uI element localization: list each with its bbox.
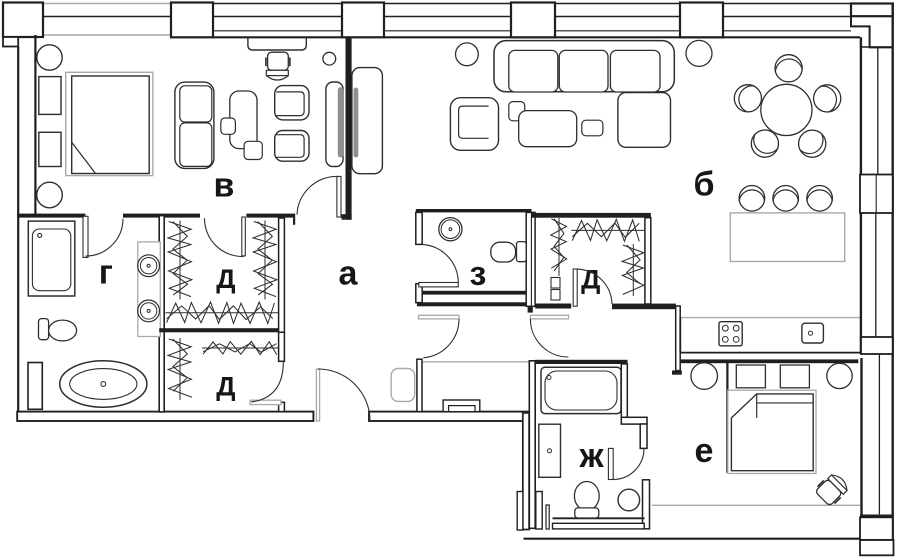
svg-text:ж: ж	[578, 437, 604, 475]
svg-text:г: г	[99, 254, 113, 292]
svg-text:а: а	[339, 255, 359, 293]
svg-text:б: б	[693, 166, 714, 204]
svg-text:е: е	[695, 432, 714, 470]
svg-text:в: в	[214, 167, 235, 205]
svg-text:Д: Д	[216, 372, 235, 402]
svg-text:Д: Д	[216, 264, 235, 294]
svg-text:з: з	[470, 255, 487, 293]
svg-text:Д: Д	[581, 265, 600, 295]
